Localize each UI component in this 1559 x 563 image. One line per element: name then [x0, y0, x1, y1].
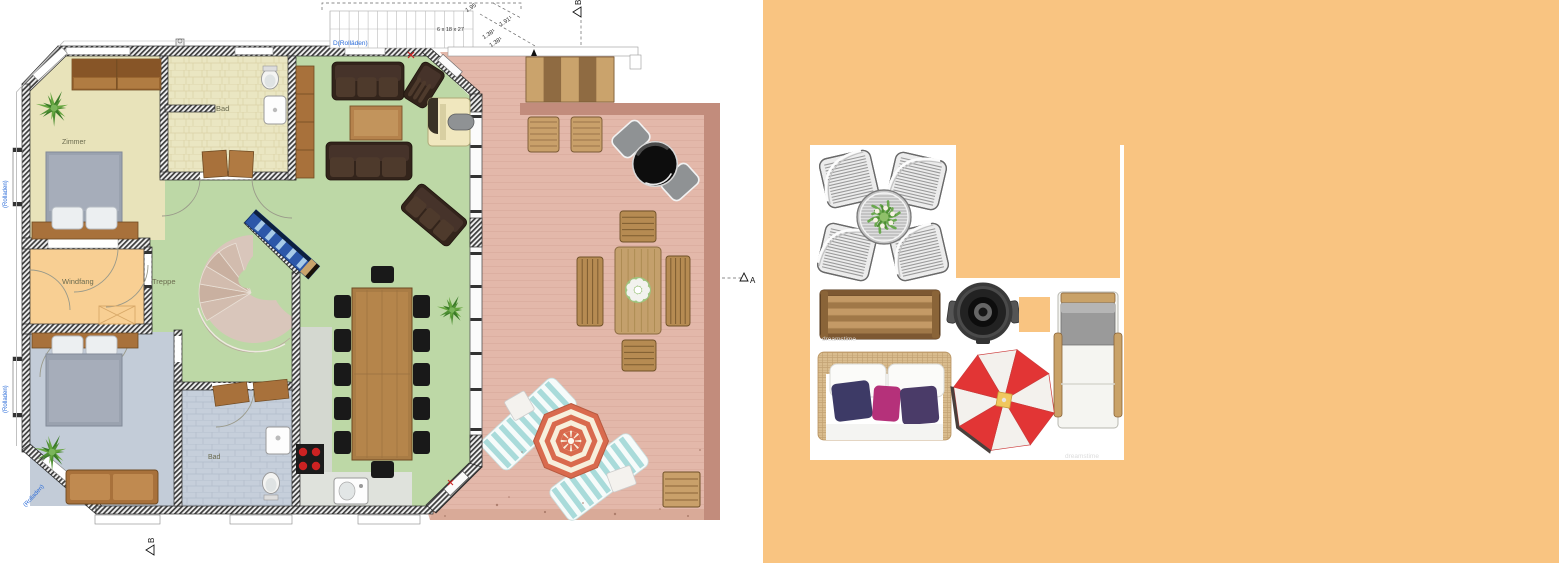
- svg-text:B: B: [574, 0, 583, 5]
- svg-text:Windfang: Windfang: [62, 277, 94, 286]
- svg-text:A: A: [750, 276, 756, 285]
- svg-text:Bad: Bad: [216, 104, 229, 113]
- svg-text:Zimmer: Zimmer: [62, 139, 86, 146]
- svg-text:Bad: Bad: [208, 454, 221, 461]
- svg-text:Treppe: Treppe: [152, 277, 176, 286]
- svg-text:dreamstime: dreamstime: [822, 336, 856, 343]
- svg-text:B: B: [147, 538, 156, 543]
- svg-text:(Rolladen): (Rolladen): [3, 180, 9, 208]
- svg-text:6 x 18 x 27: 6 x 18 x 27: [437, 27, 464, 33]
- svg-text:D(Rolläden): D(Rolläden): [333, 40, 368, 47]
- svg-text:(Rolladen): (Rolladen): [3, 385, 9, 413]
- svg-text:dreamstime: dreamstime: [1065, 453, 1099, 460]
